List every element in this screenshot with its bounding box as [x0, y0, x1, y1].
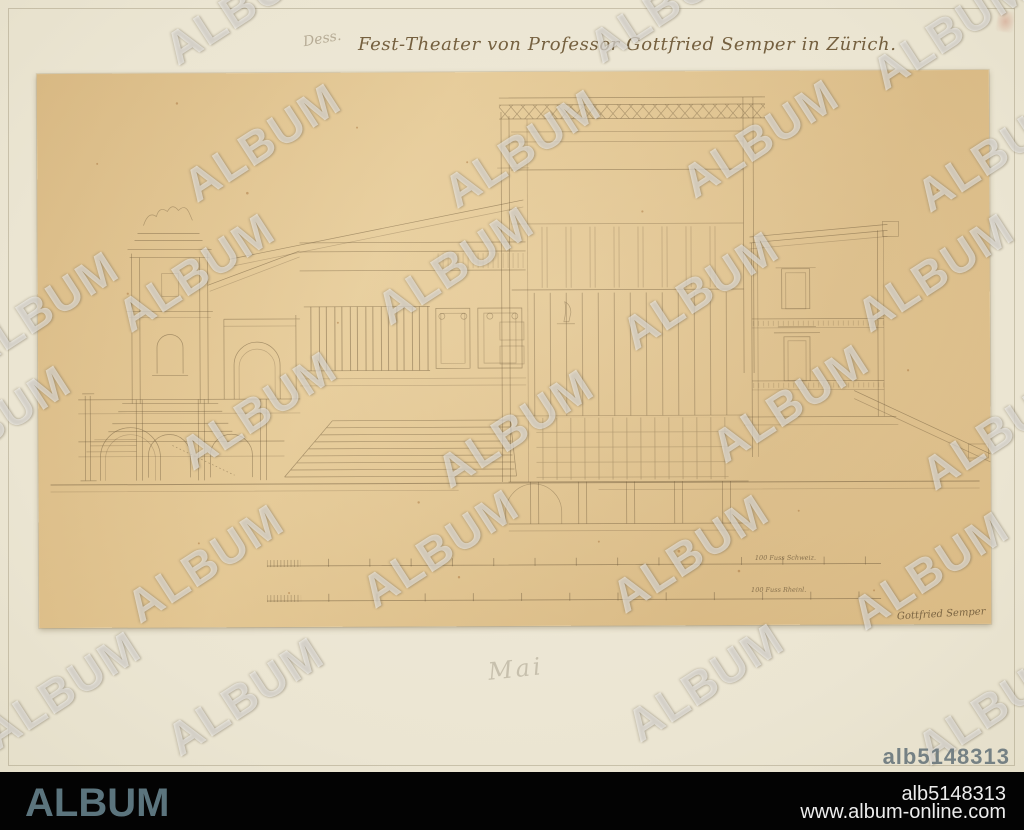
stock-photo-page: Dess. Fest-Theater von Professor Gottfri…: [0, 0, 1024, 830]
photo-area: Dess. Fest-Theater von Professor Gottfri…: [0, 0, 1024, 772]
scale-label-upper: 100 Fuss Schweiz.: [755, 554, 816, 562]
pencil-note-top: Dess.: [302, 28, 343, 50]
image-id-overlay: alb5148313: [883, 744, 1010, 770]
theater-section-drawing: 100 Fuss Schweiz. 100 Fuss Rheinl. Gottf…: [37, 70, 991, 628]
title-inscription: Fest-Theater von Professor Gottfried Sem…: [358, 34, 738, 55]
scale-label-lower: 100 Fuss Rheinl.: [751, 586, 806, 594]
album-watermark: ALBUM: [616, 611, 793, 752]
album-watermark: ALBUM: [0, 619, 151, 760]
stamp-mark: [996, 10, 1016, 33]
album-logo: ALBUM: [25, 781, 169, 826]
footer-bar: ALBUM alb5148313 www.album-online.com: [0, 772, 1024, 830]
section-linework: [49, 96, 991, 603]
drawing-sheet: 100 Fuss Schweiz. 100 Fuss Rheinl. Gottf…: [37, 70, 991, 628]
foxing-specks: [96, 99, 940, 595]
footer-image-id: alb5148313: [800, 786, 1006, 802]
album-watermark: ALBUM: [156, 625, 333, 766]
footer-website: www.album-online.com: [800, 804, 1006, 820]
artist-signature: Gottfried Semper: [897, 606, 987, 622]
footer-credits: alb5148313 www.album-online.com: [800, 786, 1006, 822]
pencil-note-bottom: Mai: [487, 652, 545, 686]
